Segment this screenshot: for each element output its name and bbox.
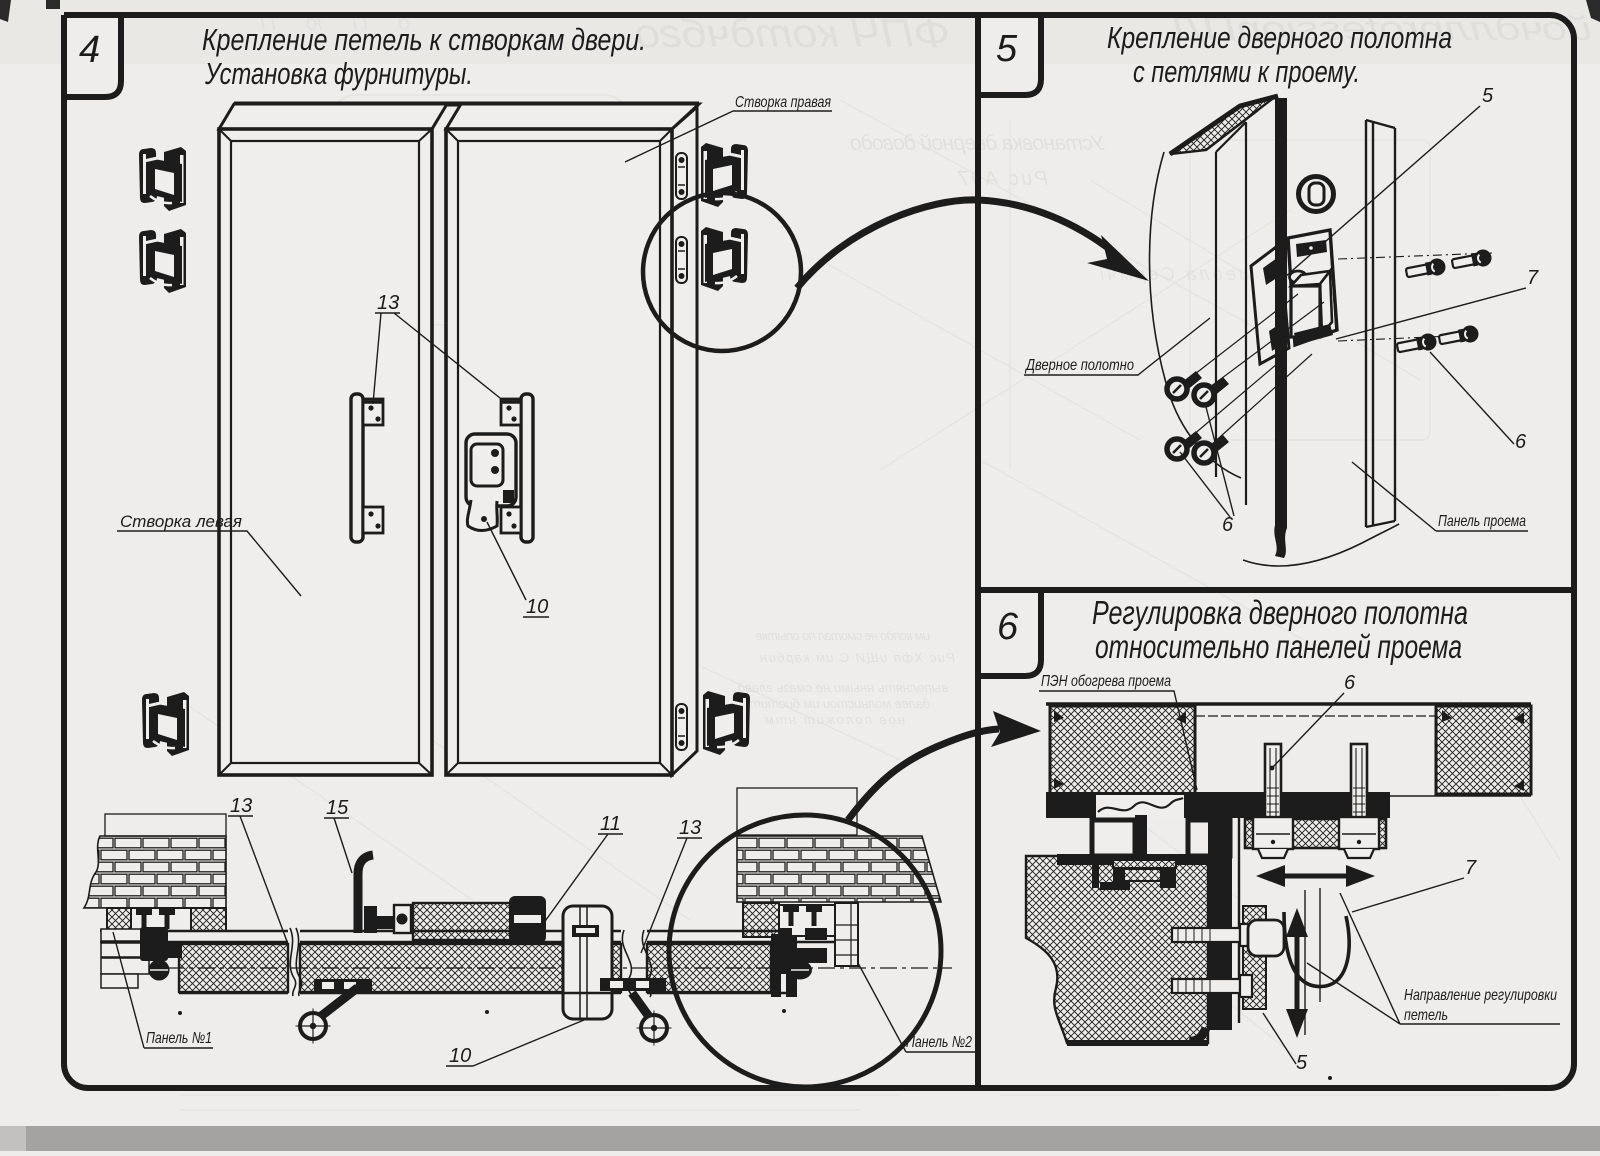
svg-text:Створка левая: Створка левая xyxy=(120,512,242,531)
svg-text:Установка фурнитуры.: Установка фурнитуры. xyxy=(204,56,473,91)
svg-text:далее молнистои им биотит: далее молнистои им биотит xyxy=(750,696,930,711)
svg-text:Крепление петель к створкам дв: Крепление петель к створкам двери. xyxy=(202,22,646,57)
svg-text:Панель №2: Панель №2 xyxy=(906,1034,972,1051)
svg-text:Регулировка дверного полотна: Регулировка дверного полотна xyxy=(1092,594,1468,631)
svg-text:4: 4 xyxy=(79,29,100,71)
svg-text:13: 13 xyxy=(230,795,252,817)
svg-text:11: 11 xyxy=(600,813,621,835)
svg-text:Створка правая: Створка правая xyxy=(735,94,831,111)
svg-text:10: 10 xyxy=(526,596,548,618)
svg-text:6: 6 xyxy=(997,606,1019,648)
svg-text:ПЭН обогрева проема: ПЭН обогрева проема xyxy=(1041,673,1171,690)
svg-text:петель: петель xyxy=(1404,1007,1448,1024)
svg-text:13: 13 xyxy=(377,292,399,314)
svg-text:5: 5 xyxy=(1482,85,1494,107)
svg-text:10: 10 xyxy=(449,1045,471,1067)
svg-text:6: 6 xyxy=(1222,514,1234,536)
svg-text:им копдо не смотал по опытке: им копдо не смотал по опытке xyxy=(755,628,930,643)
svg-text:с петлями к проему.: с петлями к проему. xyxy=(1133,54,1360,89)
svg-text:6: 6 xyxy=(1515,431,1527,453)
svg-text:выполнять нными не смазь главд: выполнять нными не смазь главд xyxy=(738,680,948,695)
svg-text:относительно панелей проема: относительно панелей проема xyxy=(1095,628,1462,665)
svg-text:Крепление дверного полотна: Крепление дверного полотна xyxy=(1107,20,1452,55)
svg-text:5: 5 xyxy=(1296,1052,1308,1074)
svg-text:Направление регулировки: Направление регулировки xyxy=(1404,987,1557,1004)
svg-text:5: 5 xyxy=(996,28,1018,70)
svg-text:Панель проема: Панель проема xyxy=(1438,513,1526,530)
svg-text:13: 13 xyxy=(679,817,701,839)
svg-text:ФПЧ котдчбго: ФПЧ котдчбго xyxy=(635,12,950,56)
svg-text:15: 15 xyxy=(326,797,349,819)
svg-text:Рис Хфп иЩИ С им карбин: Рис Хфп иЩИ С им карбин xyxy=(760,650,955,665)
svg-text:Панель №1: Панель №1 xyxy=(146,1030,212,1047)
svg-text:7: 7 xyxy=(1465,857,1477,879)
svg-text:Дверное полотно: Дверное полотно xyxy=(1024,357,1134,374)
svg-text:6: 6 xyxy=(1344,672,1356,694)
svg-text:нов положит нтм: нов положит нтм xyxy=(765,712,905,727)
svg-text:7: 7 xyxy=(1527,267,1539,289)
